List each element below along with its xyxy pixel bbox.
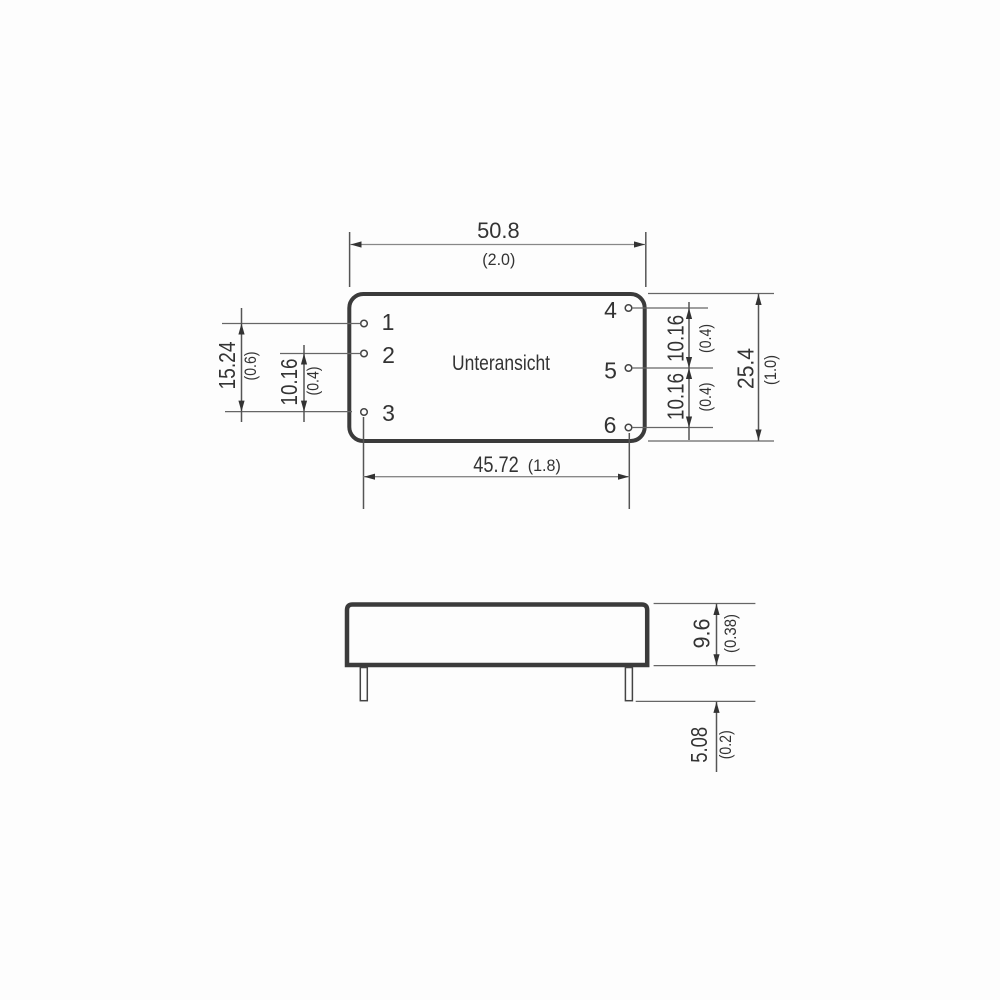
svg-text:(1.0): (1.0) <box>761 355 780 385</box>
svg-text:4: 4 <box>604 297 617 323</box>
svg-text:10.16: 10.16 <box>663 373 689 420</box>
svg-text:50.8: 50.8 <box>477 218 520 243</box>
svg-text:10.16: 10.16 <box>663 315 689 362</box>
svg-text:3: 3 <box>382 400 395 426</box>
svg-text:(1.8): (1.8) <box>528 456 561 475</box>
svg-text:25.4: 25.4 <box>733 348 759 389</box>
svg-text:(0.2): (0.2) <box>716 730 735 759</box>
svg-text:2: 2 <box>382 342 395 368</box>
svg-text:(0.4): (0.4) <box>696 383 715 412</box>
svg-text:9.6: 9.6 <box>689 619 715 649</box>
svg-text:(0.6): (0.6) <box>241 352 260 381</box>
svg-text:6: 6 <box>604 412 617 438</box>
svg-text:(2.0): (2.0) <box>482 251 515 269</box>
svg-text:(0.4): (0.4) <box>696 324 715 353</box>
svg-text:(0.38): (0.38) <box>721 614 740 653</box>
svg-text:Unteransicht: Unteransicht <box>452 352 550 375</box>
svg-text:10.16: 10.16 <box>276 359 302 406</box>
svg-text:1: 1 <box>382 309 395 335</box>
svg-text:5: 5 <box>604 358 617 384</box>
svg-text:15.24: 15.24 <box>214 342 240 390</box>
svg-text:5.08: 5.08 <box>686 727 712 763</box>
svg-text:(0.4): (0.4) <box>304 367 323 396</box>
svg-text:45.72: 45.72 <box>473 452 519 477</box>
